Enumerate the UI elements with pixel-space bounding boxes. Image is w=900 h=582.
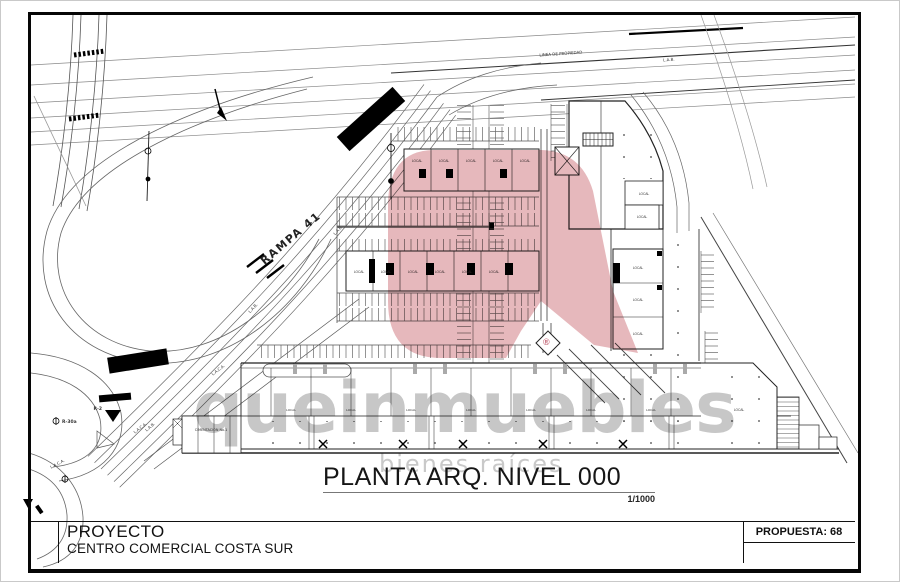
watermark-pin-shape — [388, 150, 638, 358]
watermark-brand: queinmuebles — [193, 367, 736, 449]
north-marker-icon — [23, 499, 33, 508]
architectural-sheet: RAMPA 41 LINEA DE PROPIEDAD L.A.B. L.A.B… — [0, 0, 900, 582]
project-name: CENTRO COMERCIAL COSTA SUR — [67, 541, 293, 556]
project-label: PROYECTO — [67, 522, 165, 542]
drawing-title: PLANTA ARQ. NIVEL 000 — [323, 463, 621, 492]
watermark-pin — [1, 1, 900, 582]
registered-mark-icon: ® — [543, 337, 550, 347]
drawing-scale: 1/1000 — [595, 494, 655, 504]
titleblock-divider — [58, 521, 59, 563]
titleblock-divider — [743, 542, 855, 543]
drawing-title-underline — [323, 492, 655, 493]
proposal-number: PROPUESTA: 68 — [743, 521, 855, 542]
